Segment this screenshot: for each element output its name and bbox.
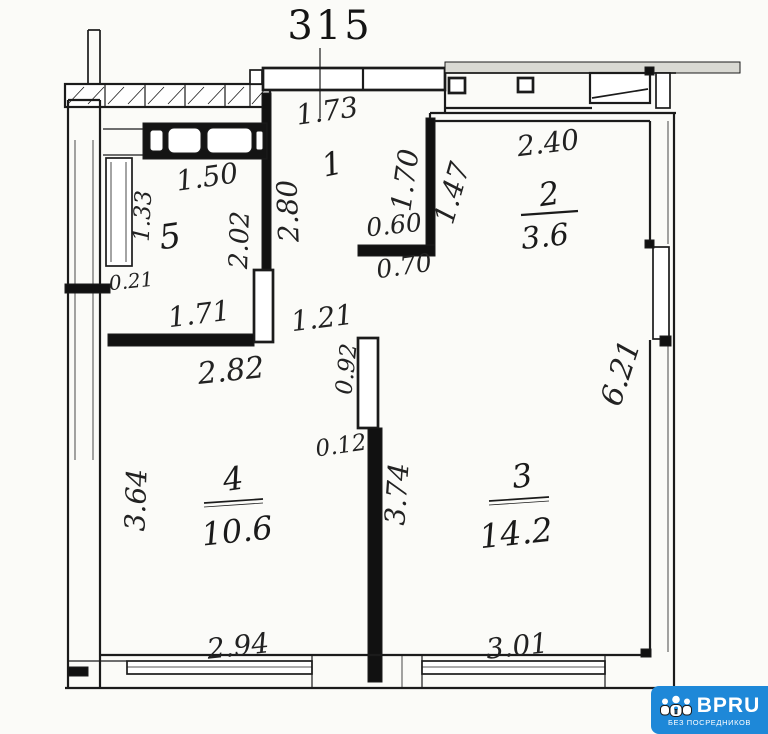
- room4-area: 10.6: [200, 508, 275, 553]
- dim-room4-bottom: 2.94: [205, 626, 270, 665]
- dim-niche-top: 0.60: [365, 208, 423, 243]
- left-wall: [65, 100, 110, 688]
- top-strip-loggia: [445, 62, 740, 108]
- watermark-row: BPRU: [659, 694, 761, 718]
- vent-shaft-block: [103, 123, 267, 159]
- room3-area: 14.2: [477, 510, 554, 556]
- dim-partition-length: 3.74: [378, 462, 415, 526]
- floorplan-canvas: 315 1 2 3.6 3 14.2 4 10.6 5 1.73 2.80 1.…: [0, 0, 768, 734]
- dim-bath-right: 2.02: [224, 211, 256, 270]
- dim-bath-wall-bottom: 2.82: [196, 350, 266, 392]
- unit-number-title: 315: [287, 3, 372, 49]
- dim-room3-bottom: 3.01: [484, 626, 549, 665]
- people-key-icon: [659, 694, 693, 718]
- bathroom-bottom-wall: [108, 334, 254, 346]
- floorplan-drawing: [0, 0, 768, 734]
- room2-area: 3.6: [519, 217, 570, 257]
- room2-top-wall: [430, 113, 676, 121]
- dim-bath-offset: 0.21: [108, 267, 155, 296]
- dim-hall-left: 2.80: [270, 179, 305, 242]
- bpru-watermark: BPRU БЕЗ ПОСРЕДНИКОВ: [651, 686, 768, 734]
- dim-door-opening: 0.92: [331, 342, 362, 396]
- dim-bath-left: 1.33: [129, 190, 158, 243]
- watermark-brand: BPRU: [697, 695, 761, 716]
- right-wall: [645, 113, 674, 688]
- dim-room4-left: 3.64: [118, 468, 153, 531]
- watermark-tagline: БЕЗ ПОСРЕДНИКОВ: [668, 719, 751, 727]
- bathroom-duct: [106, 158, 132, 266]
- corridor-wall-hatched: [65, 30, 270, 107]
